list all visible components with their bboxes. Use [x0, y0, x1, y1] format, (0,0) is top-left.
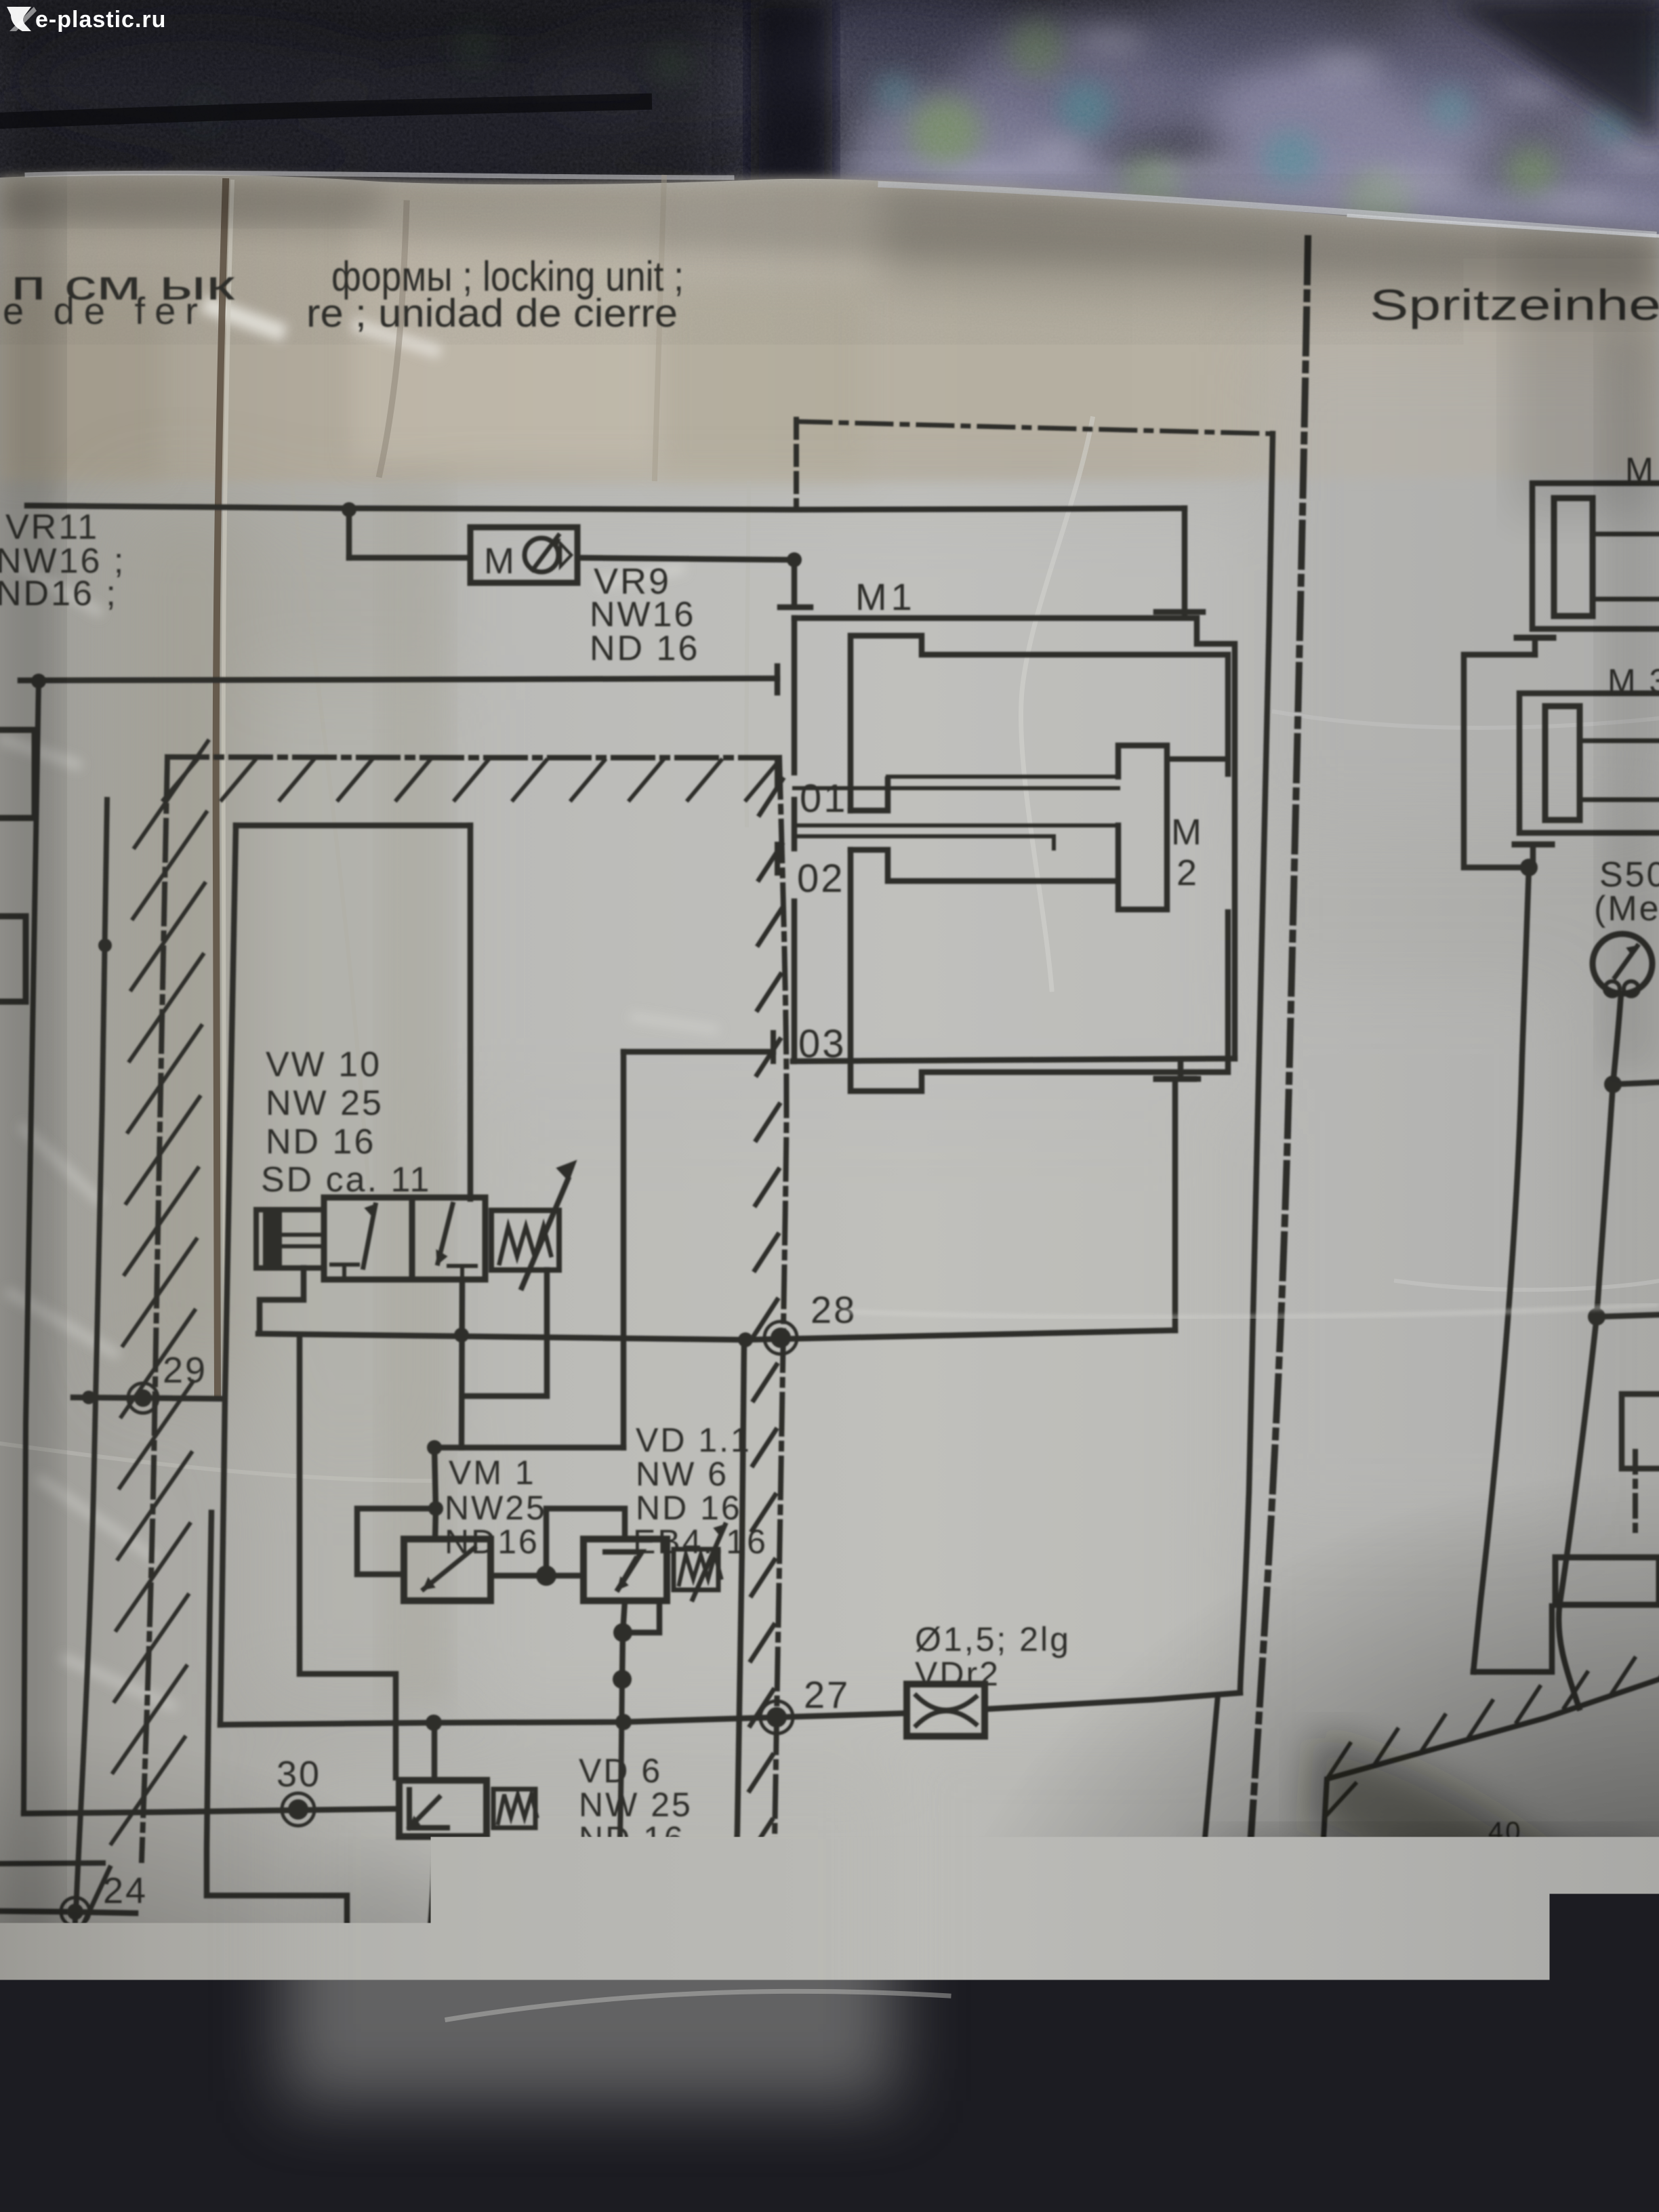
svg-text:NW25: NW25: [445, 1489, 547, 1527]
svg-text:M: M: [484, 541, 514, 581]
svg-text:02: 02: [797, 857, 845, 901]
svg-text:27: 27: [804, 1673, 850, 1716]
svg-text:03: 03: [798, 1022, 846, 1066]
svg-text:ND 16: ND 16: [636, 1489, 742, 1527]
svg-text:ND16: ND16: [445, 1523, 539, 1561]
svg-text:2: 2: [1176, 853, 1199, 893]
svg-text:M: M: [1171, 812, 1204, 853]
svg-text:01: 01: [800, 777, 848, 821]
svg-text:VM 1: VM 1: [449, 1454, 536, 1492]
svg-text:M1: M1: [855, 575, 916, 618]
svg-text:NW 25: NW 25: [266, 1084, 384, 1123]
svg-text:29: 29: [163, 1350, 207, 1391]
svg-text:re ; unidad de cierre: re ; unidad de cierre: [306, 291, 678, 335]
svg-text:VW 10: VW 10: [266, 1045, 382, 1084]
svg-text:ND 16: ND 16: [266, 1122, 375, 1162]
svg-text:VD 1.1: VD 1.1: [636, 1421, 752, 1459]
svg-text:EB4..16: EB4..16: [633, 1523, 768, 1561]
svg-text:e-plastic.ru: e-plastic.ru: [35, 7, 166, 33]
svg-text:ND 16: ND 16: [590, 629, 699, 668]
svg-text:NW 6: NW 6: [636, 1455, 729, 1493]
svg-text:SD ca. 11: SD ca. 11: [261, 1160, 431, 1200]
